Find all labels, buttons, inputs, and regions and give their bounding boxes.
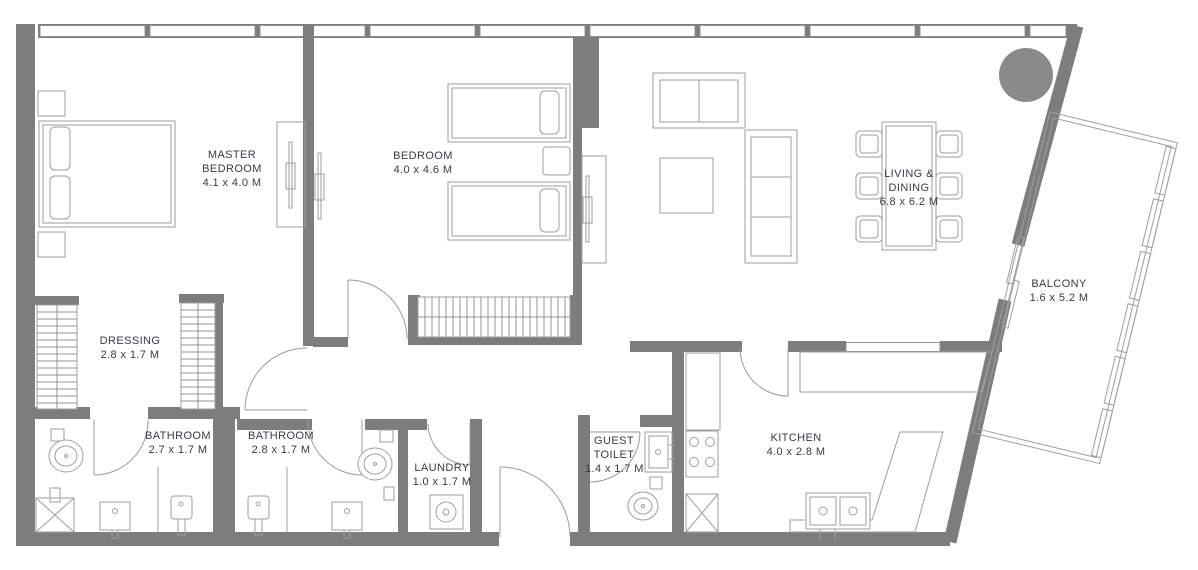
- shaft: [686, 494, 718, 532]
- room-label-master-bedroom: MASTER BEDROOM 4.1 x 4.0 M: [192, 148, 272, 190]
- washbasin-icon: [645, 432, 676, 472]
- dining-chair: [856, 131, 882, 157]
- room-label-bedroom: BEDROOM 4.0 x 4.6 M: [363, 149, 483, 177]
- tv-icon: [586, 176, 589, 242]
- bedroom2-wall-tv: [315, 153, 324, 219]
- laundry-door: [428, 423, 470, 465]
- living-tv-unit: [582, 156, 606, 263]
- room-label-dressing: DRESSING 2.8 x 1.7 M: [70, 334, 190, 362]
- room-label-bathroom-2: BATHROOM 2.8 x 1.7 M: [221, 429, 341, 457]
- room-name: KITCHEN: [736, 431, 856, 445]
- room-dims: 4.1 x 4.0 M: [192, 176, 272, 190]
- window: [590, 26, 695, 37]
- room-label-bathroom-master: BATHROOM 2.7 x 1.7 M: [118, 429, 238, 457]
- pillow: [50, 127, 70, 170]
- washer-icon: [430, 495, 463, 529]
- pillow: [540, 189, 559, 232]
- bedroom2-wardrobe: [418, 297, 570, 337]
- room-name: LIVING & DINING: [870, 167, 948, 195]
- tv-icon: [318, 153, 321, 219]
- room-label-laundry: LAUNDRY 1.0 x 1.7 M: [382, 461, 502, 489]
- room-dims: 1.4 x 1.7 M: [585, 462, 643, 476]
- dining-chair: [936, 131, 962, 157]
- master-bed: [38, 91, 175, 257]
- window: [1030, 26, 1066, 37]
- room-dims: 2.8 x 1.7 M: [70, 348, 190, 362]
- room-dims: 1.6 x 5.2 M: [999, 291, 1119, 305]
- window: [480, 26, 585, 37]
- bedroom2-door: [348, 280, 407, 339]
- window: [370, 26, 475, 37]
- window: [150, 26, 255, 37]
- pillow: [50, 176, 70, 219]
- room-name: BEDROOM: [363, 149, 483, 163]
- tv-icon: [289, 142, 292, 208]
- shower-icon: [36, 498, 74, 532]
- cistern: [51, 429, 64, 441]
- room-dims: 4.0 x 4.6 M: [363, 163, 483, 177]
- loveseat-sofa: [653, 73, 745, 128]
- nightstand: [543, 147, 570, 175]
- washbasin-icon: [248, 496, 269, 535]
- room-dims: 2.7 x 1.7 M: [118, 443, 238, 457]
- dining-chair: [856, 216, 882, 242]
- room-name: GUEST TOILET: [585, 434, 643, 462]
- window: [40, 26, 145, 37]
- stove-icon: [686, 431, 718, 477]
- kitchen-door: [740, 348, 788, 396]
- room-dims: 6.8 x 6.2 M: [870, 195, 948, 209]
- column: [999, 48, 1053, 102]
- kitchen-cabinet: [686, 353, 720, 430]
- room-name: BALCONY: [999, 277, 1119, 291]
- master-tv-unit: [277, 122, 305, 227]
- room-label-guest-toilet: GUEST TOILET 1.4 x 1.7 M: [585, 434, 643, 476]
- room-dims: 1.0 x 1.7 M: [382, 475, 502, 489]
- floor-plan: MASTER BEDROOM 4.1 x 4.0 M BEDROOM 4.0 x…: [0, 0, 1198, 570]
- three-seat-sofa: [745, 130, 797, 263]
- toilet-icon: [628, 492, 658, 520]
- room-label-kitchen: KITCHEN 4.0 x 2.8 M: [736, 431, 856, 459]
- room-name: MASTER BEDROOM: [192, 148, 272, 176]
- washbasin-icon: [171, 496, 192, 535]
- dining-chair: [936, 216, 962, 242]
- laundry-fixtures: [430, 495, 463, 529]
- pillow: [540, 91, 559, 134]
- room-name: DRESSING: [70, 334, 190, 348]
- room-name: LAUNDRY: [382, 461, 502, 475]
- room-dims: 2.8 x 1.7 M: [221, 443, 341, 457]
- master-suite-door: [245, 348, 307, 410]
- window: [700, 26, 805, 37]
- facade-windows: [40, 26, 1066, 37]
- entrance-door: [500, 467, 570, 537]
- cistern: [650, 477, 662, 489]
- room-name: BATHROOM: [118, 429, 238, 443]
- window: [810, 26, 915, 37]
- window: [920, 26, 1025, 37]
- cistern: [380, 430, 393, 442]
- coffee-table: [660, 158, 713, 213]
- room-name: BATHROOM: [221, 429, 341, 443]
- kitchen-counter-top: [800, 352, 992, 392]
- room-dims: 4.0 x 2.8 M: [736, 445, 856, 459]
- room-label-balcony: BALCONY 1.6 x 5.2 M: [999, 277, 1119, 305]
- room-label-living-dining: LIVING & DINING 6.8 x 6.2 M: [870, 167, 948, 209]
- toilet-icon: [49, 440, 83, 472]
- kitchen-window: [846, 343, 940, 352]
